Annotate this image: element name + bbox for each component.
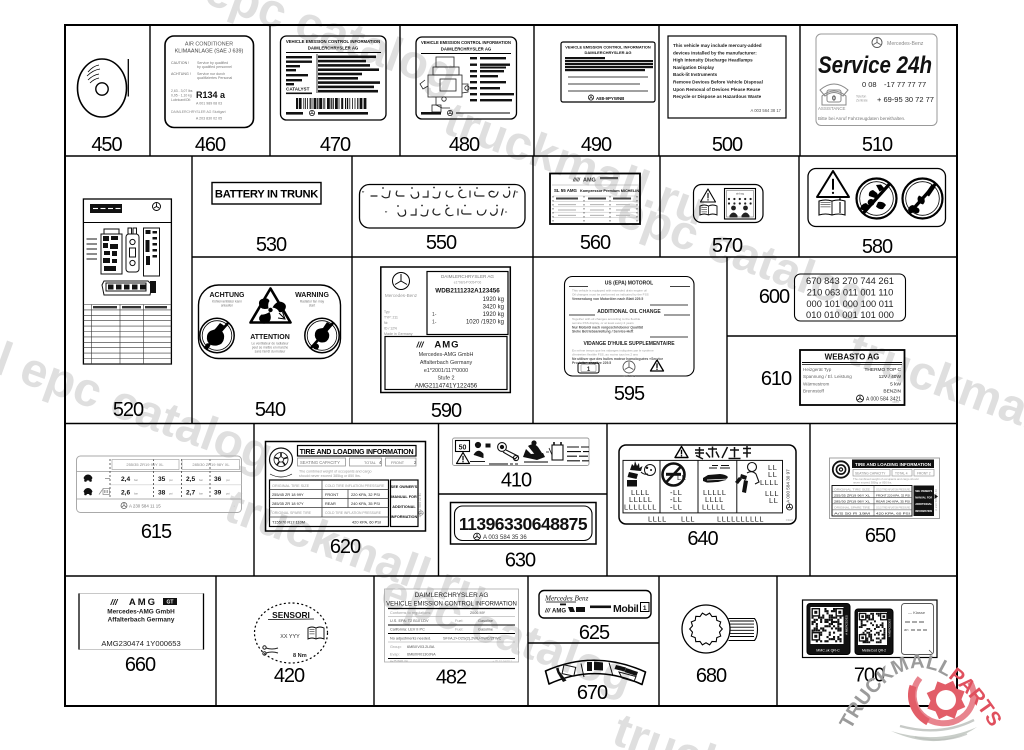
svg-text:38: 38 — [158, 490, 166, 497]
svg-text:630: 630 — [505, 550, 536, 572]
svg-text:SEATING CAPACITY: SEATING CAPACITY — [855, 471, 886, 475]
svg-text:Heizgerät Typ: Heizgerät Typ — [803, 367, 832, 372]
svg-text:AMG: AMG — [583, 178, 596, 184]
svg-text:680: 680 — [696, 665, 727, 687]
svg-text:T155/70 R17 110M: T155/70 R17 110M — [272, 520, 305, 525]
svg-text:670 843 270 744 261: 670 843 270 744 261 — [806, 276, 894, 286]
svg-text:Kompressor Premium MICHELIN: Kompressor Premium MICHELIN — [580, 189, 639, 193]
svg-text:1920 kg: 1920 kg — [483, 297, 504, 303]
svg-text:LL: LL — [677, 473, 686, 482]
svg-text:WARNING: WARNING — [295, 292, 329, 299]
svg-text:should never exceed 385kg or 8: should never exceed 385kg or 850 lbs. — [299, 474, 361, 478]
svg-text:AMG: AMG — [552, 609, 566, 615]
svg-text:The combined weight of occupan: The combined weight of occupants and car… — [299, 470, 372, 474]
svg-text:285/30 ZR19 98Y XL: 285/30 ZR19 98Y XL — [834, 500, 870, 504]
svg-text:SEATING CAPACITY: SEATING CAPACITY — [300, 460, 340, 465]
svg-text:LLLL: LLLL — [648, 515, 667, 524]
svg-text:AMG: AMG — [129, 597, 157, 608]
svg-text:sans l'arrêt du moteur: sans l'arrêt du moteur — [255, 350, 287, 354]
svg-text:11396330648875: 11396330648875 — [459, 514, 588, 534]
svg-text:520: 520 — [113, 399, 144, 421]
svg-text:2,4: 2,4 — [121, 476, 130, 483]
svg-text:Recycle or Dispose as Hazardou: Recycle or Dispose as Hazardous Waste — [673, 94, 762, 99]
svg-text:XX YYY: XX YYY — [280, 634, 300, 640]
svg-text:KLIMAANLAGE (SAE J 639): KLIMAANLAGE (SAE J 639) — [175, 49, 244, 55]
svg-text:Fuel:: Fuel: — [455, 628, 463, 632]
svg-text:This vehicle may include mercu: This vehicle may include mercury-added — [673, 43, 762, 48]
svg-text:A88-9PYWNB: A88-9PYWNB — [596, 96, 624, 101]
svg-text:TOTAL: TOTAL — [364, 461, 376, 465]
svg-text:by qualified personnel: by qualified personnel — [197, 65, 232, 69]
svg-text:560: 560 — [580, 232, 611, 254]
svg-text:A 230 584 11 15: A 230 584 11 15 — [129, 504, 161, 509]
svg-text:Navigation Display: Navigation Display — [673, 65, 715, 70]
svg-text:bar: bar — [134, 478, 138, 482]
svg-text:A 003 584 35 36: A 003 584 35 36 — [483, 535, 527, 541]
svg-text:ORIGINAL SPARE TIRE: ORIGINAL SPARE TIRE — [272, 511, 312, 515]
svg-text:psi: psi — [169, 478, 173, 482]
svg-text:285/30 ZR19 98Y XL: 285/30 ZR19 98Y XL — [192, 462, 230, 467]
svg-text:35: 35 — [158, 476, 166, 483]
svg-text:TYP: 211: TYP: 211 — [384, 316, 398, 320]
svg-text:CAUTION !: CAUTION ! — [171, 61, 189, 65]
svg-text:SEE OWNER'S: SEE OWNER'S — [915, 489, 932, 493]
svg-text:1920 kg: 1920 kg — [483, 312, 504, 318]
svg-text:255/35 ZR19 96Y XL: 255/35 ZR19 96Y XL — [126, 462, 164, 467]
svg-text:REAR 240 KPA, 35 PSI: REAR 240 KPA, 35 PSI — [876, 500, 910, 504]
svg-text:A 230 584 06 40: A 230 584 06 40 — [934, 489, 938, 511]
svg-text:500: 500 — [712, 134, 743, 156]
svg-text:SFI/A,2+O2S(2),2WU-TWC/2TWC: SFI/A,2+O2S(2),2WU-TWC/2TWC — [443, 637, 502, 641]
svg-text:MB 229.5: MB 229.5 — [623, 374, 636, 378]
svg-text:+ 05 22 14 00 1: + 05 22 14 00 1 — [492, 659, 512, 663]
svg-text:625: 625 — [579, 622, 610, 644]
svg-text:BATTERY IN TRUNK: BATTERY IN TRUNK — [215, 189, 318, 201]
svg-text:DAIMLERCHRYSLER AG: DAIMLERCHRYSLER AG — [441, 46, 492, 51]
svg-text:285/35 ZR 18 97Y: 285/35 ZR 18 97Y — [272, 501, 304, 506]
svg-text:devices installed by the manuf: devices installed by the manufacturer: — [673, 50, 757, 55]
svg-text:LLLLLLL: LLLLLLL — [624, 503, 657, 512]
svg-text:COLD TIRE INFLATION PRESSURE: COLD TIRE INFLATION PRESSURE — [325, 484, 385, 488]
svg-text:ADDITIONAL: ADDITIONAL — [915, 502, 932, 506]
svg-text:LLL: LLL — [681, 515, 695, 524]
svg-text:210 063 011 001 110: 210 063 011 001 110 — [807, 287, 894, 297]
svg-text:Service 24h: Service 24h — [818, 52, 932, 79]
svg-text:480: 480 — [449, 134, 480, 156]
svg-text:6MBXV03.2LBA: 6MBXV03.2LBA — [407, 645, 435, 649]
svg-text:VEHICLE EMISSION CONTROL INFOR: VEHICLE EMISSION CONTROL INFORMATION — [421, 40, 511, 45]
svg-text:Bitte bei Anruf Fahrzeugdaten: Bitte bei Anruf Fahrzeugdaten bereithalt… — [818, 116, 905, 121]
svg-text:1020 /1920 kg: 1020 /1920 kg — [466, 320, 504, 326]
svg-text:WEBASTO AG: WEBASTO AG — [825, 353, 880, 362]
svg-text:e1*98/14*0054*06: e1*98/14*0054*06 — [454, 281, 482, 285]
svg-text:VEHICLE EMISSION CONTROL INFOR: VEHICLE EMISSION CONTROL INFORMATION — [286, 39, 380, 44]
svg-text:Siehe Betriebsanleitung / Serv: Siehe Betriebsanleitung / Service-Heft — [572, 330, 634, 334]
svg-text:2006 MY: 2006 MY — [470, 611, 486, 615]
svg-text:anlaufen: anlaufen — [221, 304, 233, 308]
svg-text://///: ///// — [572, 178, 581, 184]
svg-text:qualifiziertes Personal: qualifiziertes Personal — [197, 76, 232, 80]
svg-text:TIRE AND LOADING INFORMATION: TIRE AND LOADING INFORMATION — [300, 448, 414, 456]
svg-text:bar: bar — [199, 492, 203, 496]
svg-text:California: LEV II PC: California: LEV II PC — [390, 628, 425, 632]
svg-text:SENSORI: SENSORI — [272, 610, 310, 620]
svg-text:ORIGINAL TIRE SIZE: ORIGINAL TIRE SIZE — [834, 487, 870, 491]
svg-text:DAIMLERCHRYSLER AG: DAIMLERCHRYSLER AG — [415, 592, 489, 599]
svg-text:0,95 - 1,10 kg: 0,95 - 1,10 kg — [171, 93, 192, 97]
svg-text:DAIMLERCHRYSLER AG: DAIMLERCHRYSLER AG — [441, 274, 494, 279]
svg-text:Lubricant/Oil:: Lubricant/Oil: — [171, 98, 191, 102]
svg-text:psi: psi — [226, 492, 230, 496]
svg-text:Affalterbach Germany: Affalterbach Germany — [108, 617, 175, 624]
svg-text:Wärmestrom: Wärmestrom — [803, 381, 829, 386]
svg-text:COLD TIRE INFLATION PRESSURE: COLD TIRE INFLATION PRESSURE — [876, 506, 910, 510]
svg-text:A 003 564 38 17: A 003 564 38 17 — [750, 108, 781, 113]
svg-text:⌁: ⌁ — [233, 504, 235, 508]
svg-text:420 KPA, 60 PSI: 420 KPA, 60 PSI — [352, 520, 381, 525]
svg-text:ASSISTANCE: ASSISTANCE — [818, 106, 846, 111]
svg-text:0 08: 0 08 — [862, 80, 877, 89]
svg-text:420: 420 — [274, 665, 305, 687]
svg-text:airbag: airbag — [736, 192, 745, 196]
svg-text:620: 620 — [330, 536, 361, 558]
svg-text:Evap:: Evap: — [390, 653, 400, 657]
svg-text:670: 670 — [577, 682, 608, 704]
svg-text:+ 69-95 30 72 77: + 69-95 30 72 77 — [877, 95, 934, 104]
svg-text:240 KPA, 35 PSI: 240 KPA, 35 PSI — [351, 501, 380, 506]
svg-text:-17 77 77 77: -17 77 77 77 — [884, 80, 926, 89]
svg-text:Conforms to regulations:: Conforms to regulations: — [390, 611, 431, 615]
svg-text:CATALYST: CATALYST — [286, 87, 310, 92]
svg-text:service FSS display, or at lea: service FSS display, or at least every 2… — [572, 321, 634, 325]
svg-text:590: 590 — [431, 400, 462, 422]
svg-text:never exceed 385kg or 850 lbs.: never exceed 385kg or 850 lbs. — [853, 480, 892, 484]
svg-text:TIRE AND LOADING INFORMATION: TIRE AND LOADING INFORMATION — [855, 462, 931, 467]
svg-text:ATTENTION: ATTENTION — [250, 334, 290, 341]
svg-text:C3HO: C3HO — [786, 518, 793, 522]
svg-text:Group:: Group: — [390, 645, 402, 649]
svg-text:LLLLLLLLLL: LLLLLLLLLL — [717, 515, 764, 524]
svg-text:FRONT: FRONT — [391, 461, 405, 465]
svg-text:410: 410 — [501, 470, 532, 492]
svg-text:A 000 584 30 97: A 000 584 30 97 — [786, 469, 791, 503]
svg-text:US (EPA) MOTOROL: US (EPA) MOTOROL — [605, 281, 653, 287]
svg-text:ADDITIONAL: ADDITIONAL — [392, 505, 416, 509]
svg-text:570: 570 — [712, 235, 743, 257]
svg-text:VEHICLE EMISSION CONTROL INFOR: VEHICLE EMISSION CONTROL INFORMATION — [386, 602, 517, 608]
svg-text:Mercedes-AMG GmbH: Mercedes-AMG GmbH — [107, 609, 175, 616]
svg-text:A 001 989 08 03: A 001 989 08 03 — [196, 102, 222, 106]
svg-text:SEE OWNER'S: SEE OWNER'S — [391, 485, 418, 489]
svg-text:Mercedes-Benz: Mercedes-Benz — [887, 41, 924, 47]
svg-text:Upon Removal of Devices Please: Upon Removal of Devices Please Reuse — [673, 87, 761, 92]
svg-text:3420 kg: 3420 kg — [483, 305, 504, 311]
svg-text:psi: psi — [169, 492, 173, 496]
svg-text:e1*2001/117*0000: e1*2001/117*0000 — [424, 368, 468, 374]
svg-text:DAIMLERCHRYSLER AG: DAIMLERCHRYSLER AG — [308, 46, 359, 51]
svg-text:650: 650 — [865, 525, 896, 547]
svg-text:615: 615 — [141, 521, 172, 543]
svg-text:482: 482 — [436, 667, 467, 689]
svg-text:A+75 8421 04: A+75 8421 04 — [390, 659, 408, 663]
svg-text:Made in Germany: Made in Germany — [384, 332, 413, 336]
svg-text:FRONT 2: FRONT 2 — [917, 471, 931, 475]
svg-text:BENZIN: BENZIN — [883, 389, 901, 395]
svg-text:ORIGINAL TIRE SIZE: ORIGINAL TIRE SIZE — [272, 484, 310, 488]
svg-text:MANUAL FOR: MANUAL FOR — [391, 495, 417, 499]
svg-text:Nr.: Nr. — [384, 321, 388, 325]
svg-text:DAIMLERCHRYSLER AG Stuttgart: DAIMLERCHRYSLER AG Stuttgart — [171, 110, 226, 114]
svg-text:INFORMATION: INFORMATION — [391, 515, 418, 519]
svg-text:490: 490 — [581, 134, 612, 156]
svg-text:TOTAL 4: TOTAL 4 — [895, 471, 908, 475]
svg-text:6MBXR0130JNA: 6MBXR0130JNA — [407, 653, 436, 657]
svg-text:VEHICLE EMISSION CONTROL INFOR: VEHICLE EMISSION CONTROL INFORMATION — [565, 44, 651, 49]
svg-text:No adjustments needed.: No adjustments needed. — [390, 637, 431, 641]
svg-text:600: 600 — [759, 286, 790, 308]
svg-text:AMG: AMG — [434, 340, 459, 351]
svg-text:R134 a: R134 a — [196, 90, 226, 100]
svg-text:470: 470 — [320, 134, 351, 156]
svg-text:1-: 1- — [432, 312, 437, 318]
svg-text:0: 0 — [832, 96, 836, 103]
svg-text:COLD TIRE INFLATION PRESSURE: COLD TIRE INFLATION PRESSURE — [325, 511, 382, 515]
svg-text:A MERCEDES: A MERCEDES — [888, 619, 892, 637]
svg-text:Mercedes-Benz: Mercedes-Benz — [385, 293, 418, 298]
svg-text:WDB2111232A123456: WDB2111232A123456 — [435, 288, 500, 295]
svg-text:VIDANGE D'HUILE SUPPLEMENTAIRE: VIDANGE D'HUILE SUPPLEMENTAIRE — [583, 341, 675, 347]
svg-text:CK67: CK67 — [893, 400, 900, 404]
svg-text:A MERCEDES: A MERCEDES — [845, 615, 849, 635]
svg-text:ACHTUNG: ACHTUNG — [210, 292, 246, 299]
svg-text:36: 36 — [214, 476, 222, 483]
svg-text:ORIGINAL SPARE TIRE: ORIGINAL SPARE TIRE — [834, 506, 870, 510]
svg-text:Mobil: Mobil — [613, 603, 639, 615]
svg-text:660: 660 — [125, 654, 156, 676]
svg-text:INFORMATION: INFORMATION — [915, 509, 933, 513]
svg-text:start: start — [309, 304, 315, 308]
svg-text:U.S. EPA: T2 B10 LDV: U.S. EPA: T2 B10 LDV — [390, 619, 429, 623]
svg-text:Gasoline: Gasoline — [478, 628, 493, 632]
svg-text:AMG2114741Y122456: AMG2114741Y122456 — [415, 383, 478, 390]
svg-text:-LL: -LL — [670, 503, 682, 512]
svg-text:2,7: 2,7 — [186, 490, 195, 497]
svg-text:MeBeCod QR-2: MeBeCod QR-2 — [862, 649, 886, 653]
svg-text:High Intensity Discharge Headl: High Intensity Discharge Headlamps — [673, 58, 753, 63]
svg-text:39: 39 — [214, 490, 222, 497]
svg-text:2,63 - 3,07 lbs: 2,63 - 3,07 lbs — [171, 89, 193, 93]
svg-text:REAR: REAR — [325, 501, 336, 506]
svg-text:1-: 1- — [432, 320, 437, 326]
svg-text:Gasoline: Gasoline — [478, 619, 493, 623]
svg-text:Fuel:: Fuel: — [455, 619, 463, 623]
svg-text:Zentrale: Zentrale — [856, 99, 868, 103]
svg-text:psi: psi — [226, 478, 230, 482]
svg-text:5 kW: 5 kW — [890, 381, 901, 387]
svg-text:Stufe 2: Stufe 2 — [437, 376, 454, 382]
svg-text:LL: LL — [769, 496, 778, 505]
svg-text:MANUAL FOR: MANUAL FOR — [915, 496, 933, 500]
svg-text:220 KPA, 32 PSI: 220 KPA, 32 PSI — [351, 492, 380, 497]
svg-text:GT: GT — [167, 600, 174, 606]
svg-text:bar: bar — [199, 478, 203, 482]
svg-text:COLD TIRE INFLATION PRESSURE: COLD TIRE INFLATION PRESSURE — [876, 487, 910, 491]
svg-text:Verwendung von Motorölen nach: Verwendung von Motorölen nach Blatt 229.… — [572, 297, 643, 301]
svg-text:Remove Devices Before Vehicle: Remove Devices Before Vehicle Disposal — [673, 80, 763, 85]
svg-text:530: 530 — [256, 234, 287, 256]
svg-text:Brennstoff: Brennstoff — [803, 389, 825, 394]
svg-text:610: 610 — [761, 368, 792, 390]
svg-text:255/35 ZR19 96Y XL: 255/35 ZR19 96Y XL — [834, 493, 870, 497]
svg-text:ID / 12%: ID / 12% — [384, 327, 397, 331]
svg-text:510: 510 — [862, 134, 893, 156]
svg-text:8 Nm: 8 Nm — [293, 653, 307, 659]
svg-text:450: 450 — [91, 134, 122, 156]
svg-text:MMC.uk QR-C: MMC.uk QR-C — [816, 649, 840, 653]
svg-text:Back-lit Instruments: Back-lit Instruments — [673, 72, 718, 77]
svg-text:2,5: 2,5 — [186, 476, 195, 483]
svg-text:AIR CONDITIONER: AIR CONDITIONER — [185, 42, 233, 48]
svg-text:460: 460 — [195, 134, 226, 156]
svg-text:Oil changes must be performed: Oil changes must be performed as indicat… — [572, 293, 649, 297]
svg-text:12V / 40W: 12V / 40W — [879, 374, 902, 380]
svg-text:Affalterbach Germany: Affalterbach Germany — [420, 360, 473, 366]
svg-text:Typ: Typ — [384, 310, 390, 314]
svg-text:010 010 001 101 000: 010 010 001 101 000 — [806, 310, 894, 320]
svg-text:50: 50 — [459, 445, 467, 452]
svg-text:an: an — [904, 627, 908, 632]
svg-text:1: 1 — [643, 605, 647, 612]
svg-text:595: 595 — [614, 383, 645, 405]
svg-text:AMG230474 1Y000653: AMG230474 1Y000653 — [101, 639, 180, 648]
svg-text:FRONT 220 KPA, 32 PSI: FRONT 220 KPA, 32 PSI — [876, 493, 910, 497]
svg-text:LLLLL: LLLLL — [702, 503, 726, 512]
svg-text:640: 640 — [687, 528, 718, 550]
svg-text:ADDITIONAL OIL CHANGE: ADDITIONAL OIL CHANGE — [597, 309, 661, 315]
svg-text:FRONT: FRONT — [325, 492, 339, 497]
svg-text:Mercedes Benz: Mercedes Benz — [544, 595, 589, 603]
svg-text:d'entretien flexible FSS, au m: d'entretien flexible FSS, au moins tous … — [572, 353, 638, 357]
svg-text:Mercedes-AMG GmbH: Mercedes-AMG GmbH — [419, 352, 474, 358]
svg-text:550: 550 — [426, 232, 457, 254]
svg-text:bar: bar — [134, 492, 138, 496]
svg-text:SL 55 AMG: SL 55 AMG — [554, 188, 578, 193]
svg-text:540: 540 — [255, 399, 286, 421]
svg-text:— Klasse: — Klasse — [908, 610, 926, 615]
svg-text:A/S 50 R 19M: A/S 50 R 19M — [834, 512, 871, 516]
svg-text:THERMO TOP C: THERMO TOP C — [864, 367, 901, 373]
svg-text:ACHTUNG !: ACHTUNG ! — [171, 72, 191, 76]
svg-text:DAIMLERCHRYSLER AG: DAIMLERCHRYSLER AG — [584, 50, 631, 55]
svg-text:LLLL: LLLL — [760, 478, 779, 487]
svg-text:Spannung / El. Leistung: Spannung / El. Leistung — [803, 374, 852, 379]
svg-text:A 203 830 02 05: A 203 830 02 05 — [196, 117, 222, 121]
svg-text:580: 580 — [862, 236, 893, 258]
svg-text:000 101 000 100 011: 000 101 000 100 011 — [806, 299, 893, 309]
svg-text:420 KPA, 60 PSI: 420 KPA, 60 PSI — [876, 512, 910, 516]
svg-text:2,6: 2,6 — [121, 490, 130, 497]
svg-text:255/45 ZR 18 99Y: 255/45 ZR 18 99Y — [272, 492, 304, 497]
